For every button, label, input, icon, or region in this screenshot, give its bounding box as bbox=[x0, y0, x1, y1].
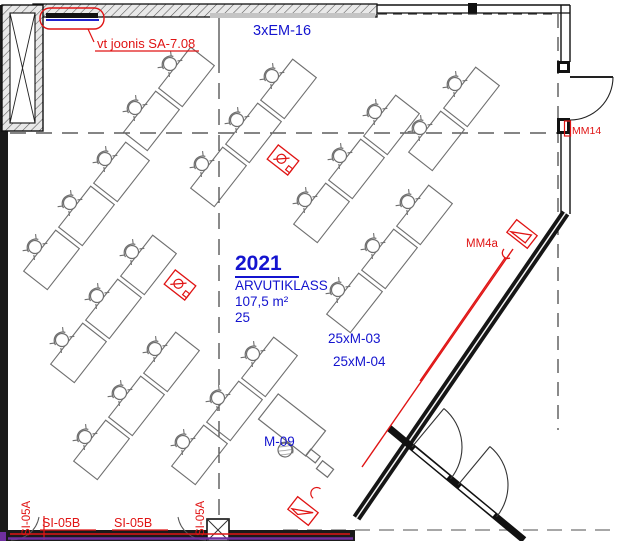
label-si05a-2: SI-05A bbox=[195, 501, 207, 536]
label-mm4a: MM4a bbox=[466, 238, 499, 250]
teacher-desk-equipment bbox=[316, 461, 333, 477]
floorplan-drawing: 3xEM-16 vt joonis SA-7.08 MM14 MM4a 2021… bbox=[0, 0, 619, 541]
floor-box-icon bbox=[267, 145, 299, 175]
walls bbox=[0, 3, 613, 541]
room-number: 2021 bbox=[235, 252, 282, 275]
wall-diagonal-core bbox=[357, 213, 566, 518]
door-jamb-core bbox=[560, 121, 567, 131]
floorplan-viewport: 3xEM-16 vt joonis SA-7.08 MM14 MM4a 2021… bbox=[0, 0, 619, 541]
door-right bbox=[570, 77, 613, 120]
wall-column-top bbox=[468, 3, 477, 13]
double-door-wall bbox=[389, 409, 528, 540]
label-3xem16: 3xEM-16 bbox=[253, 23, 311, 39]
room-area: 107,5 m² bbox=[235, 294, 289, 309]
floor-box-icon bbox=[164, 270, 196, 300]
duct-end-tail bbox=[308, 485, 320, 498]
room-name: ARVUTIKLASS bbox=[235, 278, 328, 293]
teacher-desk-equipment bbox=[306, 449, 320, 463]
label-si05a-1: SI-05A bbox=[21, 501, 33, 536]
leader-line bbox=[88, 29, 94, 42]
label-25xm03: 25xM-03 bbox=[328, 331, 381, 346]
wall-top-ledge bbox=[210, 13, 375, 18]
duct-end-cap bbox=[502, 249, 510, 258]
room-seats: 25 bbox=[235, 310, 250, 325]
shaft bbox=[2, 5, 43, 131]
label-si05b-1: SI-05B bbox=[42, 516, 80, 530]
lintel-mark bbox=[46, 13, 98, 18]
door-leaf bbox=[458, 447, 528, 517]
damper-mm4a-icon bbox=[507, 220, 537, 249]
label-revision-note: vt joonis SA-7.08 bbox=[97, 36, 195, 51]
duct-end-icon bbox=[288, 497, 318, 526]
label-si05b-2: SI-05B bbox=[114, 516, 152, 530]
door-jamb-core bbox=[560, 64, 567, 70]
label-mm14: MM14 bbox=[572, 125, 601, 137]
label-m09: M-09 bbox=[264, 434, 295, 449]
purple-node bbox=[0, 532, 6, 541]
label-25xm04: 25xM-04 bbox=[333, 354, 386, 369]
annotations bbox=[0, 8, 571, 541]
